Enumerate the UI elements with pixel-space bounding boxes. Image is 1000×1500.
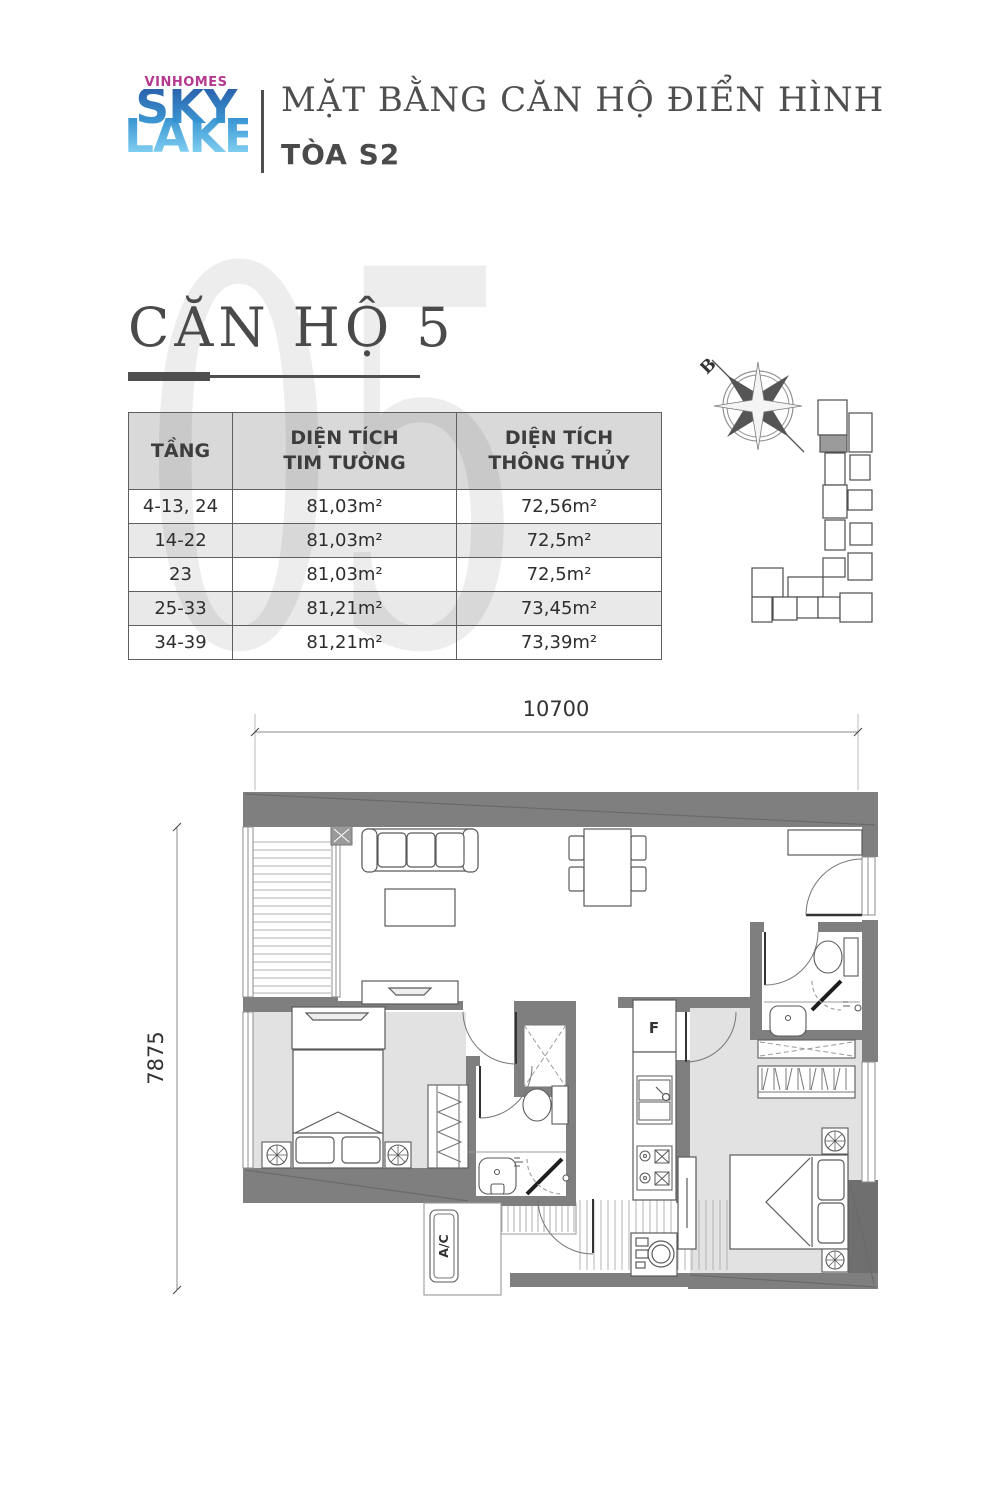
fridge-label: F bbox=[649, 1019, 659, 1037]
dim-width-label: 10700 bbox=[523, 697, 590, 721]
tv-cabinet-bed-2 bbox=[678, 1157, 696, 1249]
washing-machine bbox=[631, 1233, 677, 1276]
floor-plan: 10700 7875 bbox=[130, 688, 890, 1310]
north-label: B bbox=[700, 354, 721, 378]
tv-cabinet-living bbox=[362, 981, 458, 1004]
table-row: 34-39 81,21m² 73,39m² bbox=[129, 626, 662, 660]
balcony-deck bbox=[247, 842, 331, 993]
table-row: 14-22 81,03m² 72,5m² bbox=[129, 524, 662, 558]
vinhomes-skylake-logo: VINHOMES SKY LAKE bbox=[124, 76, 248, 155]
page-title: MẶT BẰNG CĂN HỘ ĐIỂN HÌNH bbox=[281, 80, 884, 120]
table-row: 4-13, 24 81,03m² 72,56m² bbox=[129, 490, 662, 524]
area-table: TẦNG DIỆN TÍCHTIM TƯỜNG DIỆN TÍCHTHÔNG T… bbox=[128, 412, 662, 660]
table-header-row: TẦNG DIỆN TÍCHTIM TƯỜNG DIỆN TÍCHTHÔNG T… bbox=[129, 413, 662, 490]
loggia-door bbox=[538, 1199, 593, 1254]
table-row: 25-33 81,21m² 73,45m² bbox=[129, 592, 662, 626]
entry-door bbox=[806, 859, 862, 915]
bed-2 bbox=[730, 1155, 848, 1249]
page-subtitle: TÒA S2 bbox=[281, 138, 400, 171]
header-divider bbox=[261, 90, 264, 173]
entry-cabinet bbox=[788, 830, 862, 855]
ac-label: A/C bbox=[436, 1234, 451, 1257]
unit-heading: CĂN HỘ 5 bbox=[128, 296, 456, 359]
bathroom-2 bbox=[764, 938, 861, 1036]
bed-1 bbox=[292, 1007, 385, 1168]
kitchen-sink bbox=[637, 1076, 672, 1124]
dining-table bbox=[569, 829, 646, 906]
site-key-map bbox=[745, 395, 885, 630]
coffee-table bbox=[385, 889, 455, 926]
heading-underline bbox=[128, 372, 420, 381]
dimension-top bbox=[251, 714, 862, 790]
stove bbox=[637, 1146, 672, 1190]
wardrobe-bed-2 bbox=[758, 1066, 855, 1098]
bathroom-2-door bbox=[765, 932, 818, 985]
col-floor: TẦNG bbox=[129, 413, 233, 490]
table-row: 23 81,03m² 72,5m² bbox=[129, 558, 662, 592]
dimension-left bbox=[173, 823, 181, 1294]
col-area-wall: DIỆN TÍCHTIM TƯỜNG bbox=[233, 413, 457, 490]
luggage-rack bbox=[758, 1040, 855, 1058]
page: 05 VINHOMES SKY LAKE MẶT BẰNG CĂN HỘ ĐIỂ… bbox=[0, 0, 1000, 1500]
logo-lake: LAKE bbox=[124, 118, 248, 156]
col-area-clear: DIỆN TÍCHTHÔNG THỦY bbox=[457, 413, 662, 490]
wardrobe-bed-1 bbox=[428, 1085, 468, 1168]
highlighted-unit bbox=[820, 435, 847, 452]
dim-height-label: 7875 bbox=[144, 1031, 168, 1084]
sofa bbox=[362, 829, 478, 872]
bathroom-1 bbox=[468, 1086, 569, 1194]
